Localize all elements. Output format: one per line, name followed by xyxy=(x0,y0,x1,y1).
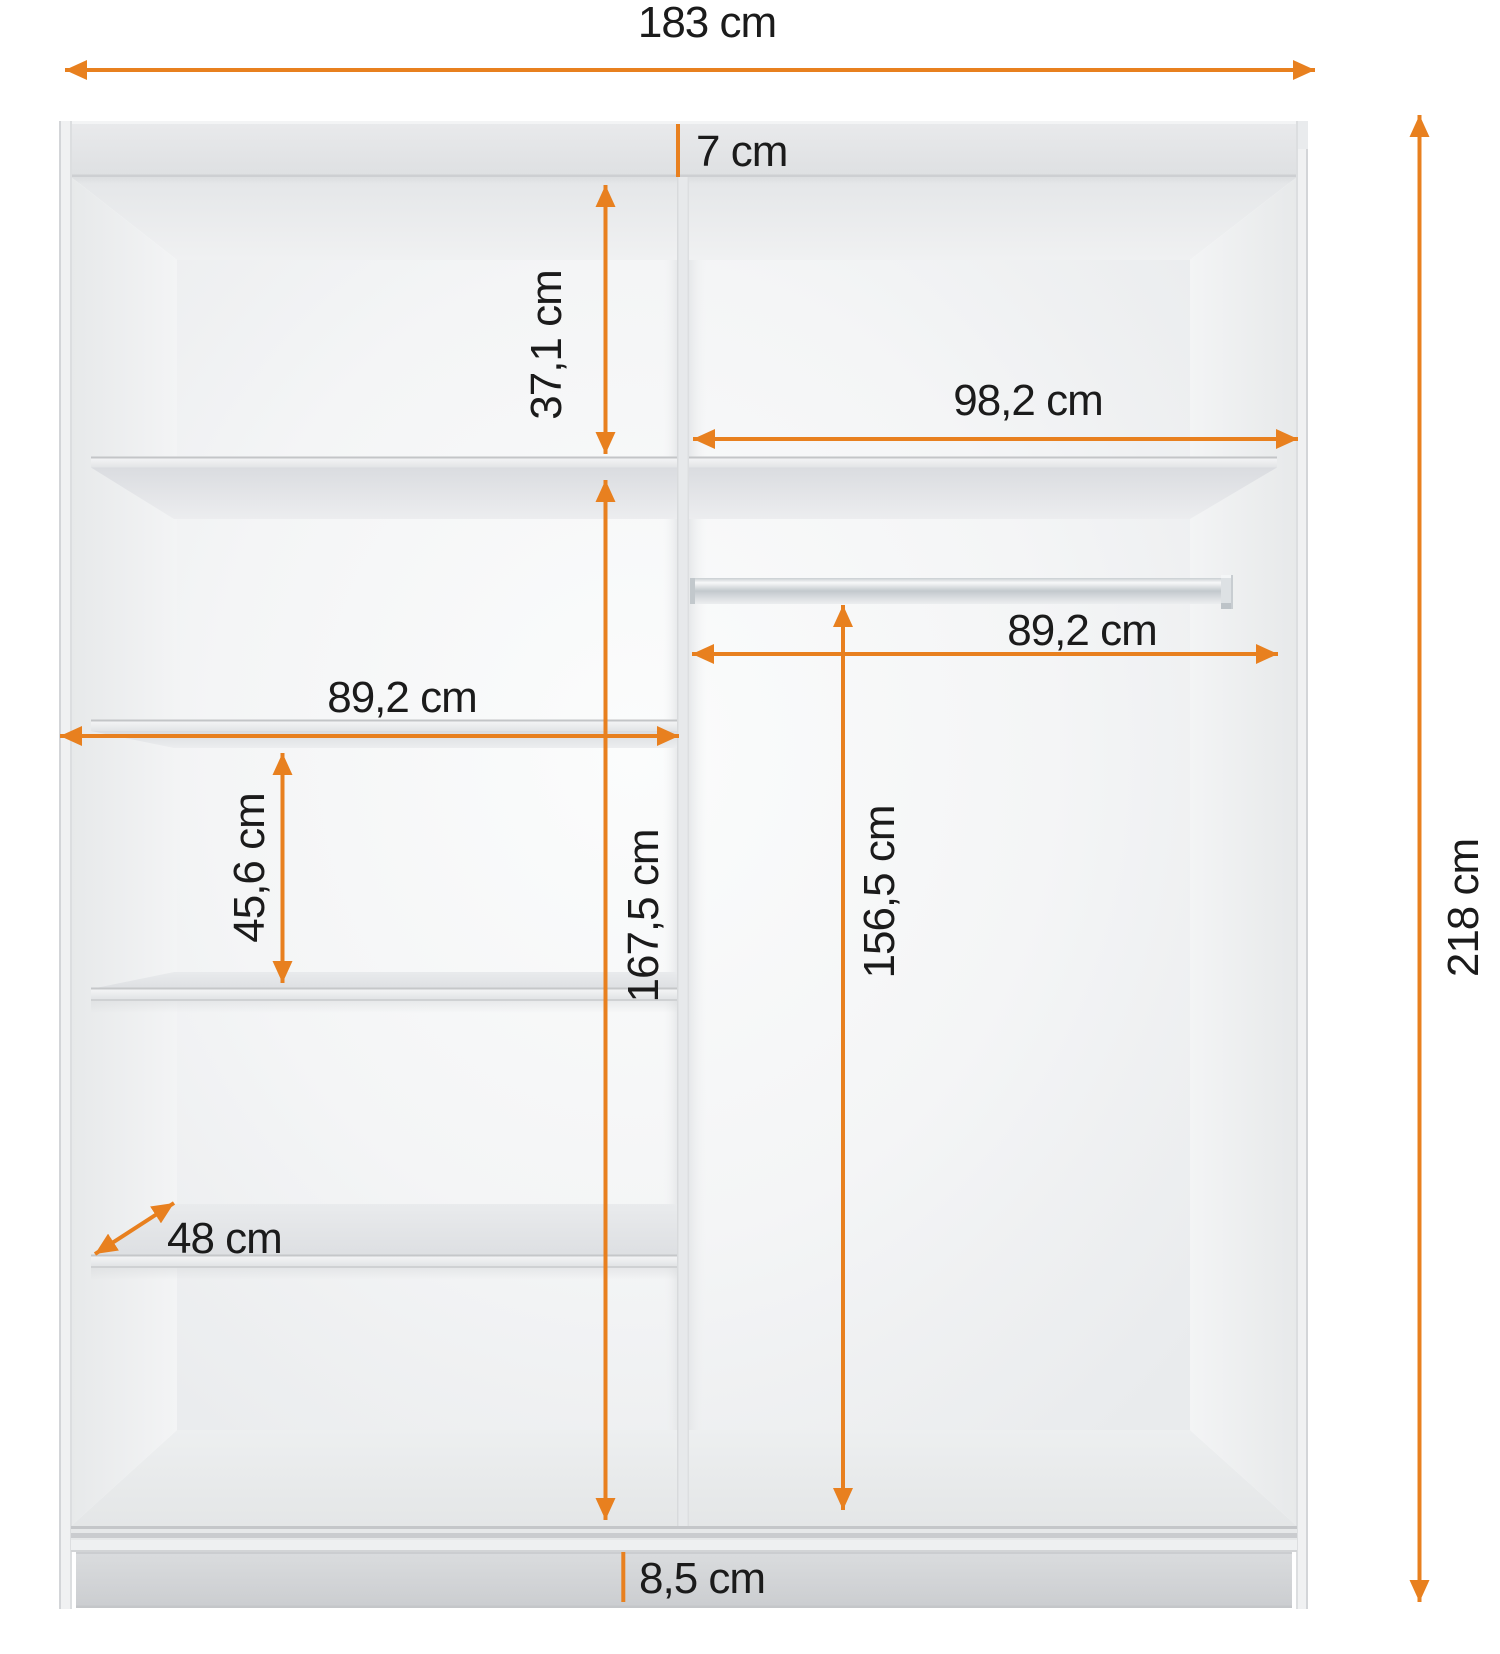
svg-text:156,5 cm: 156,5 cm xyxy=(855,806,904,979)
svg-text:8,5 cm: 8,5 cm xyxy=(639,1554,765,1603)
svg-text:48 cm: 48 cm xyxy=(167,1214,282,1263)
svg-text:167,5 cm: 167,5 cm xyxy=(619,830,668,1003)
svg-text:98,2 cm: 98,2 cm xyxy=(953,376,1103,425)
svg-text:89,2 cm: 89,2 cm xyxy=(1007,606,1157,655)
svg-text:37,1 cm: 37,1 cm xyxy=(522,270,571,420)
svg-text:218 cm: 218 cm xyxy=(1439,839,1488,977)
svg-text:183 cm: 183 cm xyxy=(638,0,776,47)
svg-text:45,6 cm: 45,6 cm xyxy=(225,793,274,943)
svg-text:7 cm: 7 cm xyxy=(696,127,787,176)
svg-text:89,2 cm: 89,2 cm xyxy=(327,673,477,722)
